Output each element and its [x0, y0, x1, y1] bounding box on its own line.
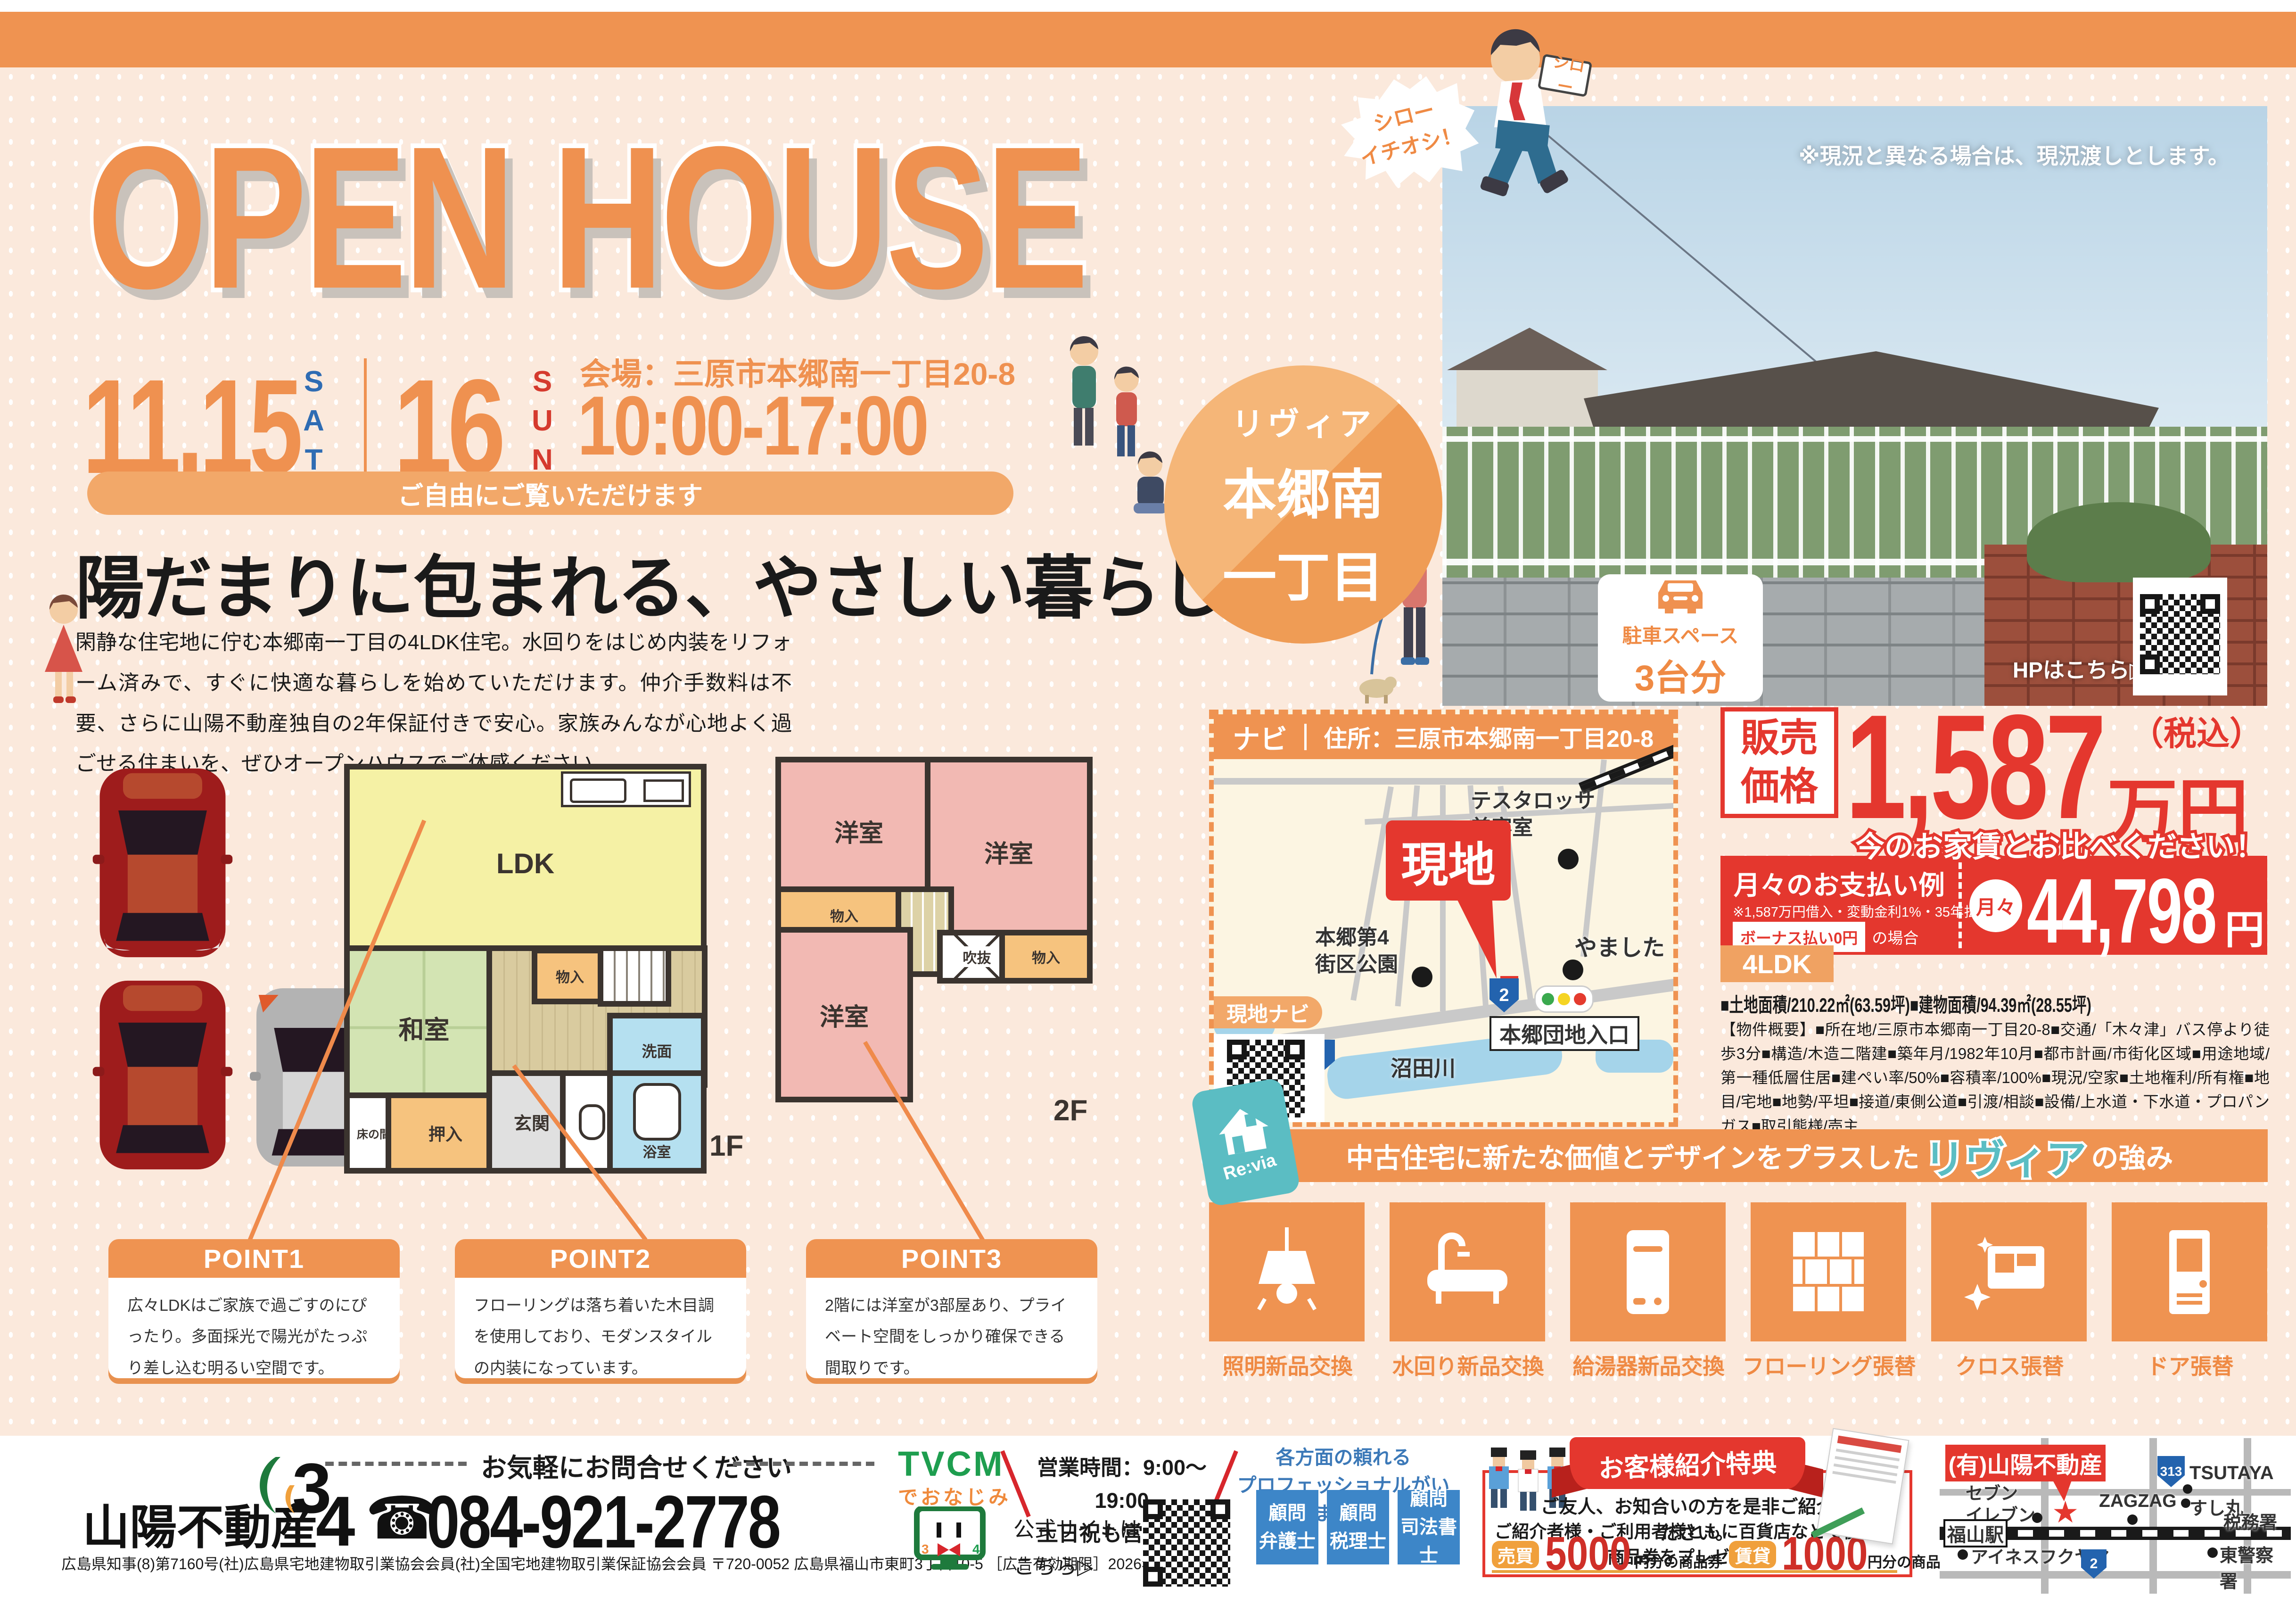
room-label: 洋室 — [820, 997, 869, 1033]
date-2-dow: SUN — [526, 365, 559, 483]
renovation-label: クロス張替 — [1919, 1349, 2100, 1381]
referral-ribbon-text: お客様紹介特典 — [1598, 1441, 1778, 1485]
room-label: 洋室 — [984, 834, 1033, 869]
official-site-label: 公式サイトは こちら▷ — [1013, 1511, 1141, 1586]
monthly-prefix: 月々 — [1976, 892, 2016, 920]
renovation-label: 水回り新品交換 — [1378, 1349, 1558, 1381]
revia-heading-brand: リヴィア — [1924, 1126, 2086, 1185]
free-view-label: ご自由にご覧いただけます — [398, 475, 703, 512]
map-navi-label: ナビ — [1233, 717, 1287, 757]
toilet-icon — [579, 1104, 605, 1140]
entrance-text: 本郷団地入口 — [1499, 1018, 1629, 1049]
renovation-tile — [1570, 1202, 1726, 1341]
point-title: POINT3 — [806, 1239, 1097, 1278]
price-tax-note: （税込） — [2131, 707, 2263, 755]
free-view-pill: ご自由にご覧いただけます — [87, 472, 1013, 515]
renovation-tile — [1390, 1202, 1545, 1341]
office-star: ★ — [2052, 1495, 2079, 1530]
red-car-illustration — [92, 764, 233, 962]
kitchen-counter — [561, 771, 691, 807]
route-number: 2 — [1499, 985, 1509, 1006]
lamp-icon — [1251, 1227, 1322, 1317]
advisor-box-lawyer: 顧問 弁護士 — [1256, 1490, 1318, 1564]
flooring-icon — [1788, 1227, 1868, 1317]
brand-name: リヴィア — [1232, 398, 1375, 445]
room-label: 押入 — [428, 1121, 462, 1145]
revia-badge: Re:via — [1190, 1077, 1301, 1207]
room-label: 和室 — [399, 1009, 450, 1046]
hp-label: HPはこちら▷ — [2013, 653, 2146, 684]
page-title: OPEN HOUSE — [87, 101, 1086, 334]
poi-entrance-label: 本郷団地入口 — [1490, 1016, 1639, 1051]
poi-dot — [1412, 967, 1432, 987]
room-label: 物入 — [830, 905, 858, 926]
mascot-character: シロー — [1457, 26, 1598, 224]
bathtub-icon — [1423, 1232, 1512, 1312]
lead-paragraph: 閑静な住宅地に佇む本郷南一丁目の4LDK住宅。水回りをはじめ内装をリフォーム済み… — [75, 622, 792, 784]
bathtub-icon — [633, 1083, 681, 1141]
room-monoire-1f: 物入 — [532, 948, 608, 1004]
wallpaper-icon — [1964, 1232, 2054, 1312]
advisor-box-scrivener: 顧問 司法書士 — [1398, 1490, 1460, 1564]
referral-ribbon: お客様紹介特典 — [1570, 1437, 1805, 1489]
parking-title: 駐車スペース — [1622, 620, 1739, 649]
room-label: 玄関 — [514, 1109, 550, 1135]
renovation-label: フローリング張替 — [1739, 1349, 1919, 1381]
banner-divider — [1959, 862, 1962, 948]
baibai-pill: 売買 — [1492, 1541, 1539, 1568]
genchi-navi-label: 現地ナビ — [1226, 997, 1309, 1027]
room-label: 洗面 — [642, 1040, 672, 1061]
room-label: 物入 — [1032, 946, 1060, 967]
fence-rail — [1442, 436, 2267, 442]
renovation-tile — [1931, 1202, 2087, 1341]
red-car-illustration — [92, 976, 233, 1174]
baibai-amount: 5000 — [1545, 1527, 1631, 1581]
minimap-label-zeimusho: 税務署 — [2223, 1508, 2277, 1534]
parking-box: 駐車スペース 3台分 — [1598, 574, 1763, 702]
monthly-note: ※1,587万円借入・変動金利1%・35年払い — [1733, 901, 1991, 921]
poi-park-label: 本郷第4 街区公園 — [1315, 924, 1398, 978]
point-box-2: POINT2 フローリングは落ち着いた木目調を使用しており、モダンスタイルの内装… — [455, 1239, 746, 1378]
rent-compare: 今のお家賃とお比べください！ — [1848, 823, 2272, 865]
poi-dot — [1958, 1549, 1968, 1560]
point-box-1: POINT1 広々LDKはご家族で過ごすのにぴったり。多面採光で陽光がたっぷり差… — [108, 1239, 400, 1378]
car-icon — [1650, 576, 1711, 616]
monthly-amount: 44,798 — [2027, 858, 2216, 964]
map-header: ナビ 住所：三原市本郷南一丁目20-8 — [1214, 714, 1673, 759]
monthly-banner: 月々のお支払い例 ※1,587万円借入・変動金利1%・35年払い ボーナス払い0… — [1720, 856, 2267, 955]
photo-caption: ※現況と異なる場合は、現況渡しとします。 — [1799, 139, 2230, 170]
minimap-label-police: 東警察署 — [2220, 1541, 2291, 1593]
flyer-page: OPEN HOUSE 11.15 SAT 16 SUN 会場：三原市本郷南一丁目… — [0, 0, 2296, 1605]
room-monoire-2f: 物入 — [999, 930, 1093, 984]
genchi-navi-tab: 現地ナビ — [1214, 996, 1322, 1028]
district-line1: 本郷南 — [1223, 451, 1384, 529]
point-body: フローリングは落ち着いた木目調を使用しており、モダンスタイルの内装になっています… — [455, 1278, 746, 1378]
room-washitsu: 和室 — [344, 945, 504, 1110]
minimap-label-tsutaya: TSUTAYA — [2189, 1463, 2274, 1484]
map-header-divider — [1304, 724, 1307, 750]
route-313-shield: 313 — [2157, 1456, 2185, 1487]
renovation-label: 照明新品交換 — [1197, 1349, 1378, 1381]
district-line2: 一丁目 — [1223, 534, 1384, 612]
poi-dot — [1563, 960, 1583, 980]
door-icon — [2159, 1227, 2220, 1317]
tvcm-sub: でおなじみ — [898, 1481, 1011, 1510]
room-label: 物入 — [556, 966, 584, 986]
access-map: ナビ 住所：三原市本郷南一丁目20-8 テスタロッサ 美容室 現地 やました 本… — [1209, 710, 1678, 1127]
renovation-tile — [1209, 1202, 1365, 1341]
bonus-suffix: の場合 — [1872, 926, 1918, 948]
price-label-box: 販売 価格 — [1720, 707, 1838, 818]
svg-text:3: 3 — [922, 1542, 929, 1556]
poi-dot — [2183, 1484, 2192, 1494]
poi-dot — [2207, 1547, 2218, 1558]
advisor-box-tax: 顧問 税理士 — [1327, 1490, 1389, 1564]
property-overview: 【物件概要】■所在地/三原市本郷南一丁目20-8■交通/「木々津」バス停より徒歩… — [1720, 1018, 2270, 1138]
tv-mascot-icon: 3 4 — [907, 1506, 992, 1572]
room-bath: 浴室 — [607, 1070, 707, 1174]
genchi-pointer — [1435, 894, 1530, 988]
company-logo-mark: 3 4 — [257, 1452, 356, 1558]
baibai-suffix: 円分の商品券 — [1635, 1550, 1722, 1572]
point-box-3: POINT3 2階には洋室が3部屋あり、プライベート空間をしっかり確保できる間取… — [806, 1239, 1097, 1378]
floor-label-1f: 1F — [709, 1129, 743, 1163]
minimap-road — [2149, 1438, 2157, 1594]
hp-qr-code — [2140, 594, 2220, 674]
bush — [2027, 502, 2211, 582]
route-number: 313 — [2160, 1464, 2182, 1479]
river-label: 沼田川 — [1391, 1051, 1456, 1083]
girl-illustration — [26, 592, 101, 710]
layout-badge: 4LDK — [1720, 945, 1834, 982]
point-body: 2階には洋室が3部屋あり、プライベート空間をしっかり確保できる間取りです。 — [806, 1278, 1097, 1378]
water-heater-icon — [1617, 1227, 1679, 1317]
stairs-1f — [598, 945, 671, 1007]
hp-qr-frame — [2133, 578, 2227, 695]
referral-paper — [1816, 1428, 1909, 1545]
layout-text: 4LDK — [1743, 949, 1811, 979]
rent-compare-text: 今のお家賃とお比べください！ — [1855, 823, 2264, 865]
parking-count: 3台分 — [1635, 649, 1726, 701]
room-yoshitsu-2f: 洋室 — [775, 927, 913, 1102]
office-callout-text: (有)山陽不動産 — [1949, 1447, 2103, 1480]
renovation-label: ドア張替 — [2100, 1349, 2280, 1381]
chintai-pill: 賃貸 — [1729, 1541, 1776, 1568]
room-label: 洋室 — [834, 813, 883, 849]
poi-dot — [1558, 849, 1579, 869]
baibai-label: 売買 — [1498, 1542, 1533, 1568]
site-qr-code — [1143, 1499, 1230, 1587]
renovation-tile — [1751, 1202, 1906, 1341]
genchi-label: 現地 — [1401, 827, 1496, 895]
open-hours: 10:00-17:00 — [577, 377, 927, 474]
room-label: LDK — [496, 847, 554, 880]
bonus-text: ボーナス払い0円 — [1740, 926, 1858, 948]
poi-dot — [2032, 1513, 2042, 1523]
poi-dot — [2181, 1498, 2190, 1508]
genchi-callout: 現地 — [1386, 820, 1511, 901]
point-body: 広々LDKはご家族で過ごすのにぴったり。多面採光で陽光がたっぷり差し込む明るい空… — [108, 1278, 400, 1378]
poi-dot — [2127, 1514, 2138, 1525]
area-figures: ■土地面積/210.22㎡(63.59坪)■建物面積/94.39㎡(28.55坪… — [1720, 989, 2091, 1018]
monthly-prefix-circle: 月々 — [1969, 879, 2022, 932]
room-label: 吹抜 — [961, 946, 993, 967]
office-callout: (有)山陽不動産 — [1945, 1445, 2106, 1481]
chintai-label: 賃貸 — [1735, 1542, 1770, 1568]
revia-banner: 中古住宅に新たな価値とデザインをプラスした リヴィア の強み — [1251, 1129, 2268, 1182]
monthly-title: 月々のお支払い例 — [1734, 864, 1945, 902]
poi-yamashita-label: やました — [1574, 929, 1665, 962]
revia-heading-post: の強み — [2091, 1136, 2173, 1175]
room-label: 浴室 — [643, 1141, 671, 1161]
mascot-sign: シロー — [1541, 55, 1593, 93]
revia-heading-pre: 中古住宅に新たな価値とデザインをプラスした — [1346, 1136, 1920, 1175]
logo-number-4: 4 — [316, 1481, 355, 1562]
dash-decor — [733, 1462, 874, 1466]
monthly-unit: 円 — [2225, 898, 2264, 955]
map-address: 住所：三原市本郷南一丁目20-8 — [1324, 720, 1654, 754]
house-icon — [1214, 1103, 1273, 1158]
renovation-label: 給湯器新品交換 — [1558, 1349, 1739, 1381]
renovation-tile — [2112, 1202, 2267, 1341]
date-1-dow: SAT — [297, 365, 330, 483]
headline: 陽だまりに包まれる、やさしい暮らし — [75, 533, 1228, 632]
floor-label-2f: 2F — [1053, 1094, 1087, 1127]
svg-text:4: 4 — [972, 1542, 980, 1556]
traffic-light-icon — [1534, 985, 1594, 1013]
point-title: POINT2 — [455, 1239, 746, 1278]
route-number: 2 — [2090, 1556, 2098, 1572]
top-orange-bar — [0, 12, 2296, 67]
minimap-label-zagzag: ZAGZAG — [2099, 1491, 2177, 1512]
room-yoshitsu-2f: 洋室 — [775, 757, 942, 905]
office-minimap: (有)山陽不動産 ★ セブン イレブン ZAGZAG 313 TSUTAYA す… — [1940, 1438, 2291, 1594]
point-title: POINT1 — [108, 1239, 400, 1278]
location-circle: リヴィア 本郷南 一丁目 — [1164, 365, 1442, 644]
tvcm-logo: TVCM — [898, 1444, 1004, 1484]
